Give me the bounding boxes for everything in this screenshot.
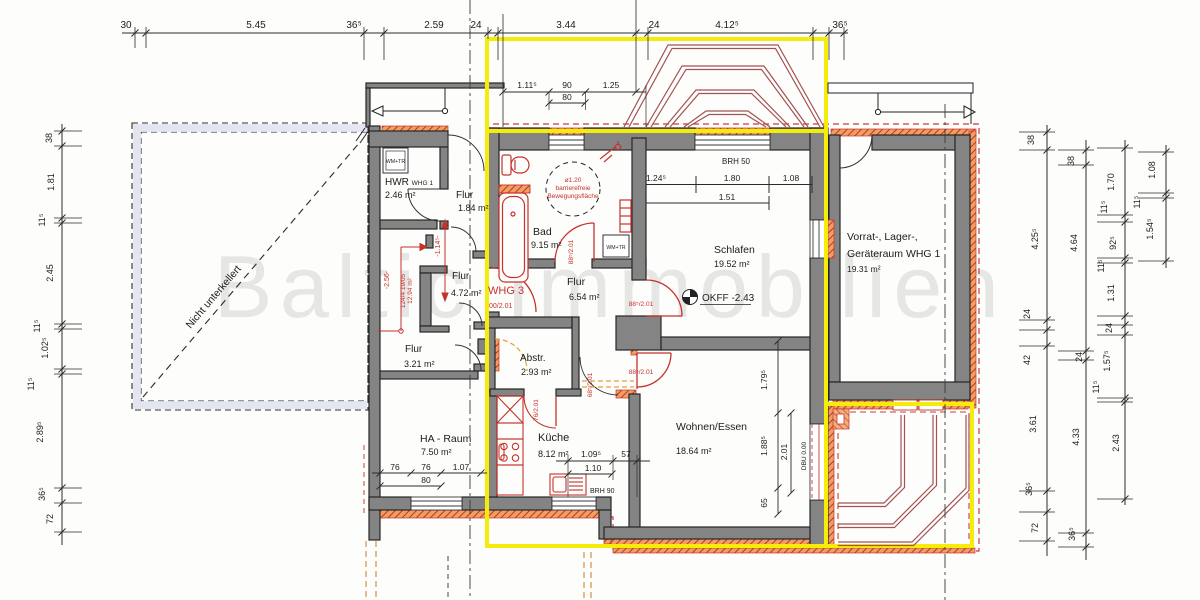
svg-text:11⁵: 11⁵ <box>1099 200 1109 213</box>
svg-text:1.84 m²: 1.84 m² <box>458 203 489 213</box>
svg-text:11⁵: 11⁵ <box>1096 259 1106 272</box>
svg-text:38: 38 <box>44 133 54 143</box>
svg-text:1.24⁵: 1.24⁵ <box>646 173 666 183</box>
svg-text:38: 38 <box>1066 156 1076 166</box>
svg-text:1.80: 1.80 <box>724 173 741 183</box>
svg-text:Wohnen/Essen: Wohnen/Essen <box>676 421 747 433</box>
svg-text:Flur: Flur <box>452 271 470 282</box>
svg-text:Flur: Flur <box>456 190 474 201</box>
svg-text:WM+TR: WM+TR <box>606 245 625 251</box>
svg-text:57: 57 <box>621 449 631 459</box>
svg-text:2.46 m²: 2.46 m² <box>385 190 416 200</box>
svg-text:36⁵: 36⁵ <box>1067 527 1077 541</box>
svg-text:11⁵: 11⁵ <box>1091 380 1101 393</box>
svg-text:3.61: 3.61 <box>1028 415 1038 433</box>
svg-text:1.79⁵: 1.79⁵ <box>759 370 769 390</box>
svg-text:2.43: 2.43 <box>1111 434 1121 452</box>
svg-text:36⁵: 36⁵ <box>832 20 847 31</box>
svg-text:18.64 m²: 18.64 m² <box>676 446 712 456</box>
svg-text:11⁵: 11⁵ <box>32 319 42 332</box>
svg-text:11⁵: 11⁵ <box>26 377 36 390</box>
svg-text:36⁵: 36⁵ <box>1024 482 1034 496</box>
svg-text:5.45: 5.45 <box>246 20 266 31</box>
svg-text:80: 80 <box>562 92 572 102</box>
svg-text:1.25: 1.25 <box>603 80 620 90</box>
svg-text:24: 24 <box>1104 323 1114 333</box>
svg-text:BRH 90: BRH 90 <box>590 488 615 495</box>
svg-text:90: 90 <box>562 80 572 90</box>
svg-text:92⁵: 92⁵ <box>1108 236 1118 250</box>
svg-text:3.44: 3.44 <box>556 20 576 31</box>
svg-text:8.12 m²: 8.12 m² <box>538 449 569 459</box>
svg-text:4.12⁵: 4.12⁵ <box>715 20 739 31</box>
svg-text:7.50 m²: 7.50 m² <box>421 447 452 457</box>
svg-text:9.15 m²: 9.15 m² <box>531 240 562 250</box>
svg-text:88⁵/2.01: 88⁵/2.01 <box>629 369 654 376</box>
svg-text:1.11⁵: 1.11⁵ <box>517 80 536 90</box>
svg-text:36⁵: 36⁵ <box>37 487 47 501</box>
svg-text:42: 42 <box>1022 355 1032 365</box>
svg-text:65: 65 <box>759 498 769 508</box>
svg-text:1.57⁵: 1.57⁵ <box>1102 350 1112 372</box>
svg-text:19.31 m²: 19.31 m² <box>847 264 881 274</box>
svg-text:76/2.01: 76/2.01 <box>533 399 540 421</box>
svg-text:1.09⁵: 1.09⁵ <box>581 449 601 459</box>
svg-text:Bewegungsfläche: Bewegungsfläche <box>547 193 599 200</box>
svg-text:12.94 m²: 12.94 m² <box>407 277 414 303</box>
svg-text:Vorrat-, Lager-,: Vorrat-, Lager-, <box>847 231 918 243</box>
svg-text:ø1.20: ø1.20 <box>565 177 582 184</box>
svg-text:4.25⁵: 4.25⁵ <box>1030 228 1040 250</box>
svg-text:76: 76 <box>390 462 400 472</box>
svg-text:88⁵/2.01: 88⁵/2.01 <box>629 301 654 308</box>
svg-text:11⁵: 11⁵ <box>37 213 47 226</box>
svg-text:Schlafen: Schlafen <box>714 244 755 256</box>
svg-text:WM+TR: WM+TR <box>386 159 405 165</box>
svg-text:1.88⁵: 1.88⁵ <box>759 436 769 456</box>
svg-text:1.02⁵: 1.02⁵ <box>40 337 50 359</box>
svg-text:Flur: Flur <box>405 344 423 355</box>
svg-text:Flur: Flur <box>567 276 586 288</box>
svg-text:1.51: 1.51 <box>719 192 736 202</box>
svg-text:1.08: 1.08 <box>783 173 800 183</box>
svg-text:38: 38 <box>1026 135 1036 145</box>
svg-text:88⁵/2.01: 88⁵/2.01 <box>568 239 575 264</box>
svg-text:Abstr.: Abstr. <box>520 353 546 364</box>
svg-text:1.81: 1.81 <box>46 173 56 191</box>
svg-text:2.45: 2.45 <box>45 264 55 282</box>
svg-text:80: 80 <box>421 475 431 485</box>
svg-text:30: 30 <box>120 20 132 31</box>
svg-text:barrierefreie: barrierefreie <box>555 185 590 192</box>
svg-text:1.31: 1.31 <box>1106 284 1116 302</box>
svg-text:68⁵/2.01: 68⁵/2.01 <box>587 372 594 397</box>
svg-text:-2.56-: -2.56- <box>384 270 391 289</box>
svg-text:24: 24 <box>470 20 482 31</box>
svg-text:3.21 m²: 3.21 m² <box>404 359 435 369</box>
svg-text:11⁵: 11⁵ <box>1132 195 1142 208</box>
svg-text:4.64: 4.64 <box>1069 234 1079 252</box>
svg-text:2.93 m²: 2.93 m² <box>521 367 552 377</box>
svg-text:BRH 50: BRH 50 <box>722 157 751 166</box>
svg-text:1.07: 1.07 <box>453 462 470 472</box>
svg-text:1.10: 1.10 <box>585 463 602 473</box>
svg-text:2.01: 2.01 <box>779 443 789 460</box>
svg-text:4.33: 4.33 <box>1071 428 1081 446</box>
svg-text:6.54 m²: 6.54 m² <box>569 292 600 302</box>
svg-text:Geräteraum WHG 1: Geräteraum WHG 1 <box>847 248 941 260</box>
svg-text:36⁵: 36⁵ <box>346 20 361 31</box>
svg-text:19.52 m²: 19.52 m² <box>714 259 750 269</box>
svg-text:2.59: 2.59 <box>424 20 444 31</box>
svg-text:24: 24 <box>1074 352 1084 362</box>
svg-text:Bad: Bad <box>533 226 552 238</box>
svg-text:00/2.01: 00/2.01 <box>489 303 512 310</box>
svg-text:72: 72 <box>1030 523 1040 533</box>
svg-text:4.72 m²: 4.72 m² <box>451 288 482 298</box>
svg-text:WHG 3: WHG 3 <box>488 285 524 297</box>
svg-text:DBU 0.00: DBU 0.00 <box>801 442 808 471</box>
svg-text:72: 72 <box>45 514 55 524</box>
svg-text:Küche: Küche <box>538 432 569 444</box>
svg-text:1.54⁵: 1.54⁵ <box>1145 218 1155 240</box>
svg-text:OKFF -2.43: OKFF -2.43 <box>702 293 755 304</box>
svg-text:124/4 19/05: 124/4 19/05 <box>400 273 407 308</box>
svg-text:-1.14⁵-: -1.14⁵- <box>435 235 442 257</box>
svg-text:1.08: 1.08 <box>1147 161 1157 179</box>
svg-text:76: 76 <box>421 462 431 472</box>
svg-text:24: 24 <box>648 20 660 31</box>
svg-text:1.70: 1.70 <box>1106 173 1116 191</box>
svg-text:24: 24 <box>1022 309 1032 319</box>
svg-text:HA - Raum: HA - Raum <box>420 433 472 445</box>
svg-text:2.89⁵: 2.89⁵ <box>35 421 45 443</box>
